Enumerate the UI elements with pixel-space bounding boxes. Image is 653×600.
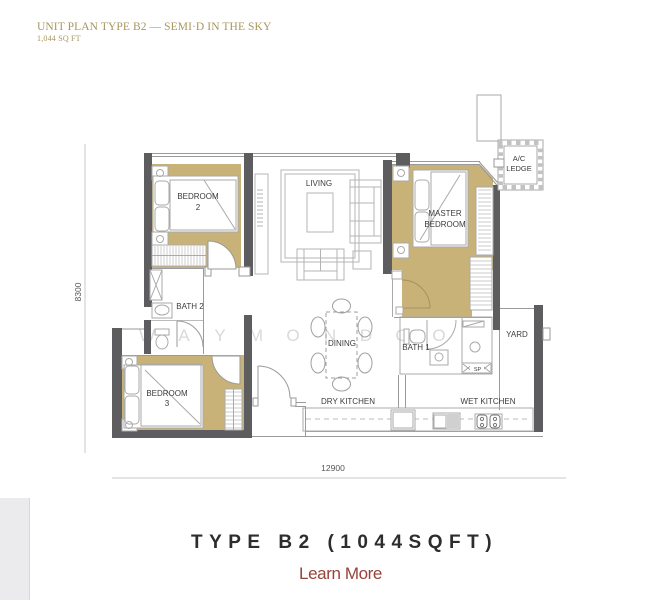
svg-text:12900: 12900 — [321, 463, 345, 473]
svg-text:DRY KITCHEN: DRY KITCHEN — [321, 397, 375, 406]
svg-text:YARD: YARD — [506, 330, 528, 339]
svg-text:3: 3 — [165, 399, 170, 408]
svg-text:A/C: A/C — [513, 154, 526, 163]
svg-text:DINING: DINING — [328, 339, 356, 348]
svg-text:WET KITCHEN: WET KITCHEN — [461, 397, 516, 406]
svg-text:A: A — [178, 326, 190, 345]
svg-text:LIVING: LIVING — [306, 179, 332, 188]
svg-text:BATH 2: BATH 2 — [176, 302, 204, 311]
svg-text:Y: Y — [214, 326, 225, 345]
svg-text:BEDROOM: BEDROOM — [424, 220, 466, 229]
svg-text:O: O — [432, 326, 445, 345]
svg-text:BATH 1: BATH 1 — [402, 343, 430, 352]
svg-text:O: O — [286, 326, 299, 345]
svg-text:MASTER: MASTER — [428, 209, 462, 218]
svg-text:BEDROOM: BEDROOM — [177, 192, 219, 201]
svg-text:8300: 8300 — [73, 282, 83, 301]
svg-text:SP: SP — [474, 367, 482, 373]
svg-text:2: 2 — [196, 203, 201, 212]
svg-text:LEDGE: LEDGE — [506, 164, 531, 173]
svg-text:BEDROOM: BEDROOM — [146, 389, 188, 398]
